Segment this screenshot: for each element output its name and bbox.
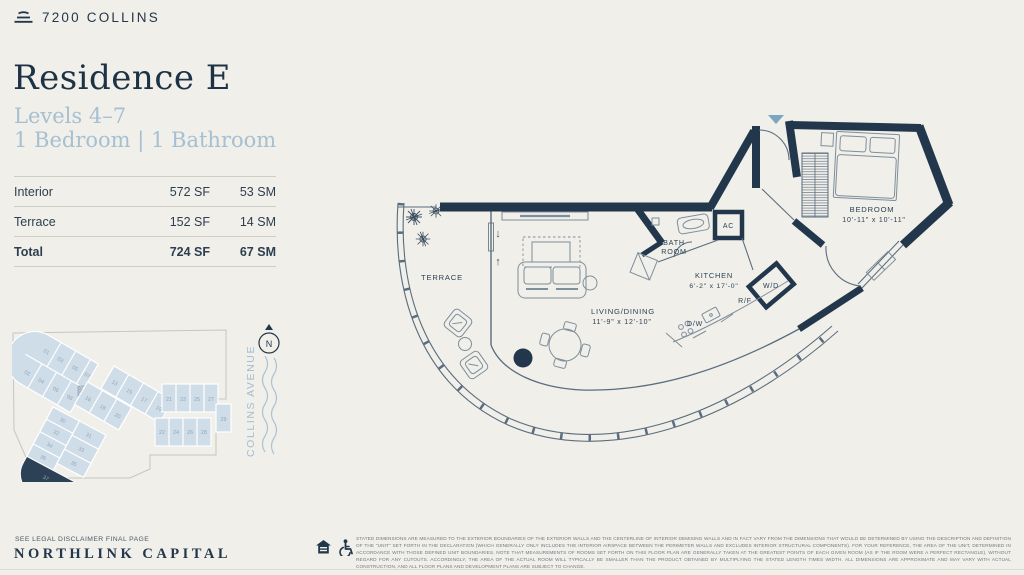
row-sm: 53 SM bbox=[210, 185, 276, 199]
row-label: Interior bbox=[14, 185, 138, 199]
company-name: NORTHLINK CAPITAL bbox=[14, 546, 231, 563]
accessibility-icon bbox=[339, 539, 353, 556]
lounge-chairs bbox=[443, 308, 490, 381]
bottom-divider bbox=[0, 569, 1024, 570]
label-bath-1: BATH bbox=[663, 238, 685, 247]
equal-housing-icon bbox=[315, 539, 332, 555]
plant-icon bbox=[406, 204, 443, 246]
footer-icons bbox=[315, 539, 353, 556]
label-bedroom: BEDROOM bbox=[850, 205, 895, 214]
building-logo-icon bbox=[14, 10, 33, 25]
label-wd: W/D bbox=[763, 283, 779, 290]
legal-disclaimer-text: STATED DIMENSIONS ARE MEASURED TO THE EX… bbox=[356, 536, 1011, 571]
label-terrace: TERRACE bbox=[421, 273, 463, 282]
table-row: Terrace 152 SF 14 SM bbox=[14, 206, 276, 236]
closet bbox=[802, 153, 828, 217]
row-sf: 152 SF bbox=[138, 215, 210, 229]
unit-number: 26 bbox=[187, 430, 193, 436]
disclaimer-note: SEE LEGAL DISCLAIMER FINAL PAGE bbox=[15, 536, 149, 543]
unit-number: 21 bbox=[166, 397, 172, 403]
building-keyplan: 01 03 05 07 02 04 06 08 13 15 bbox=[12, 322, 242, 482]
bed-icon bbox=[818, 131, 899, 201]
row-label: Total bbox=[14, 245, 138, 259]
label-dw: D/W bbox=[687, 321, 703, 328]
unit-number: 27 bbox=[208, 397, 214, 403]
table-row-total: Total 724 SF 67 SM bbox=[14, 236, 276, 267]
dresser-icon bbox=[866, 252, 895, 281]
table-row: Interior 572 SF 53 SM bbox=[14, 176, 276, 206]
unit-number: 22 bbox=[159, 430, 165, 436]
water-waves-icon bbox=[258, 356, 284, 456]
entry-arrow-icon bbox=[768, 115, 784, 124]
dining-table-icon bbox=[535, 316, 595, 373]
label-living: LIVING/DINING bbox=[591, 307, 655, 316]
keyplan-wing-c: 21 23 25 27 29 22 24 26 28 bbox=[155, 384, 231, 446]
label-kitchen: KITCHEN bbox=[695, 271, 733, 280]
brand-header: 7200 COLLINS bbox=[14, 10, 160, 25]
column bbox=[514, 349, 533, 368]
brand-name: 7200 COLLINS bbox=[42, 10, 160, 25]
row-sm: 67 SM bbox=[210, 245, 276, 259]
row-sf: 572 SF bbox=[138, 185, 210, 199]
arrow-down: ↓ bbox=[495, 228, 501, 240]
keyplan-wing-d: 30 32 34 36 31 33 35 37 bbox=[12, 407, 106, 482]
unit-number: 28 bbox=[201, 430, 207, 436]
compass-n: N bbox=[266, 339, 273, 349]
row-sf: 724 SF bbox=[138, 245, 210, 259]
area-table: Interior 572 SF 53 SM Terrace 152 SF 14 … bbox=[14, 176, 276, 267]
unit-number: 23 bbox=[180, 397, 186, 403]
label-kitchen-dims: 6'-2" x 17'-0" bbox=[689, 283, 738, 290]
page-title: Residence E bbox=[13, 58, 231, 98]
row-sm: 14 SM bbox=[210, 215, 276, 229]
label-bath-2: ROOM bbox=[661, 247, 687, 256]
row-label: Terrace bbox=[14, 215, 138, 229]
label-rf: R/F bbox=[738, 298, 752, 305]
label-ac: AC bbox=[723, 223, 734, 230]
unit-number: 25 bbox=[194, 397, 200, 403]
side-table-icon bbox=[583, 276, 597, 290]
unit-number: 29 bbox=[221, 417, 227, 423]
floor-plan: ↓ ↑ bbox=[390, 95, 970, 450]
residence-subtitle: Levels 4–7 1 Bedroom | 1 Bathroom bbox=[14, 104, 276, 152]
unit-number: 24 bbox=[173, 430, 179, 436]
residence-config: 1 Bedroom | 1 Bathroom bbox=[14, 128, 276, 152]
brochure-page: 7200 COLLINS Residence E Levels 4–7 1 Be… bbox=[0, 0, 1024, 575]
label-living-dims: 11'-9" x 12'-10" bbox=[592, 319, 651, 326]
arrow-up: ↑ bbox=[495, 256, 501, 268]
glass-wall bbox=[491, 329, 799, 390]
label-bedroom-dims: 10'-11" x 10'-11" bbox=[842, 217, 905, 224]
compass-icon: N bbox=[254, 322, 284, 356]
residence-levels: Levels 4–7 bbox=[14, 104, 276, 128]
street-label: COLLINS AVENUE bbox=[245, 347, 257, 457]
tv-console bbox=[502, 212, 588, 220]
kitchen-counter bbox=[666, 281, 788, 347]
sliding-door: ↓ ↑ bbox=[489, 211, 501, 345]
